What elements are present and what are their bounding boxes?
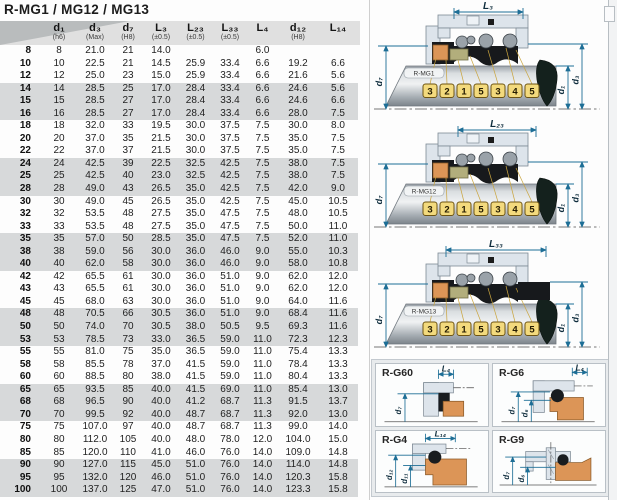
table-cell: 46.0 xyxy=(213,246,247,259)
dim-label-d7: d₇ xyxy=(394,407,403,415)
card-label: R-G60 xyxy=(382,367,413,379)
table-cell xyxy=(178,45,213,58)
part-number-tags: 3215345 xyxy=(423,322,539,336)
table-cell: 5.6 xyxy=(318,83,358,96)
page-edge xyxy=(608,0,617,500)
table-cell: 48 xyxy=(112,221,144,234)
table-cell: 39 xyxy=(112,158,144,171)
table-cell: 53.5 xyxy=(78,221,112,234)
table-row: 585885.57837.041.559.011.078.413.3 xyxy=(0,359,358,372)
table-row: 606088.58038.041.559.011.080.413.3 xyxy=(0,371,358,384)
table-cell: 51.0 xyxy=(178,459,213,472)
table-cell: 90 xyxy=(112,396,144,409)
diagram-r-mg13: R-MG13 3215345 L₃₃ d₇ d₁ d₃ xyxy=(370,238,617,358)
table-cell: 91.5 xyxy=(278,396,318,409)
table-cell: 14.0 xyxy=(318,421,358,434)
table-cell: 105 xyxy=(112,434,144,447)
table-cell: 92 xyxy=(112,409,144,422)
table-cell: 7.5 xyxy=(247,196,278,209)
table-cell: 33 xyxy=(112,120,144,133)
table-row: 707099.59240.048.768.711.392.013.0 xyxy=(0,409,358,422)
table-cell: 20 xyxy=(0,133,40,146)
table-cell: 112.0 xyxy=(78,434,112,447)
table-cell: 8.0 xyxy=(318,120,358,133)
table-cell: 18 xyxy=(40,120,78,133)
table-cell: 7.5 xyxy=(247,133,278,146)
table-cell: 93.5 xyxy=(78,384,112,397)
table-cell: 47.5 xyxy=(213,233,247,246)
part-number-text: 1 xyxy=(461,325,467,336)
table-cell: 49.0 xyxy=(78,183,112,196)
table-cell: 27 xyxy=(112,108,144,121)
card-label: R-G4 xyxy=(382,434,407,446)
table-cell: 81.0 xyxy=(78,346,112,359)
col-header-d1: d₁(h6) xyxy=(40,21,78,45)
table-cell: 80 xyxy=(40,434,78,447)
table-cell: 46.0 xyxy=(178,447,213,460)
table-cell: 40.0 xyxy=(144,421,178,434)
table-cell: 37.0 xyxy=(78,145,112,158)
table-row: 303049.04526.535.042.57.545.010.5 xyxy=(0,196,358,209)
table-cell: 32.5 xyxy=(178,170,213,183)
part-number-text: 5 xyxy=(478,205,484,216)
table-cell: 13.0 xyxy=(318,384,358,397)
table-cell: 12 xyxy=(40,70,78,83)
table-cell: 30.0 xyxy=(144,258,178,271)
table-cell: 78.5 xyxy=(78,334,112,347)
table-cell: 35 xyxy=(40,233,78,246)
table-cell: 62.0 xyxy=(278,283,318,296)
table-cell: 15 xyxy=(40,95,78,108)
table-cell: 7.5 xyxy=(318,158,358,171)
page-title: R-MG1 / MG12 / MG13 xyxy=(4,2,149,17)
table-cell: 42.5 xyxy=(213,158,247,171)
dim-label-d3: d₃ xyxy=(571,193,581,202)
table-cell: 28 xyxy=(40,183,78,196)
table-cell: 85.5 xyxy=(78,359,112,372)
table-cell: 97 xyxy=(112,421,144,434)
table-cell: 95 xyxy=(40,472,78,485)
table-cell: 65 xyxy=(0,384,40,397)
dim-label-d7: d₇ xyxy=(374,195,384,204)
diagram-r-mg1: R-MG1 3215345 L₃ d₇ d₁ d₃ xyxy=(370,0,617,120)
table-cell: 14.0 xyxy=(247,459,278,472)
table-cell: 38 xyxy=(40,246,78,259)
table-cell: 17.0 xyxy=(144,95,178,108)
table-cell: 32 xyxy=(0,208,40,221)
table-cell: 37.5 xyxy=(213,133,247,146)
table-cell: 43 xyxy=(40,283,78,296)
table-cell: 40 xyxy=(112,170,144,183)
table-cell: 9.5 xyxy=(247,321,278,334)
table-cell: 69.3 xyxy=(278,321,318,334)
table-cell: 10.8 xyxy=(318,258,358,271)
table-cell: 24.6 xyxy=(278,83,318,96)
table-cell: 14.0 xyxy=(144,45,178,58)
table-cell: 30.5 xyxy=(144,321,178,334)
table-cell: 68.7 xyxy=(213,409,247,422)
seat-variants-panel: L₄ d₇ R-G60 xyxy=(371,359,610,497)
table-cell: 46.0 xyxy=(144,472,178,485)
table-cell: 41.5 xyxy=(178,371,213,384)
card-r-g4: L₁₄ d₁₂ d₁₁ R-G4 xyxy=(375,430,489,494)
table-cell: 80 xyxy=(112,371,144,384)
table-cell: 32 xyxy=(40,208,78,221)
table-cell: 25.0 xyxy=(78,70,112,83)
table-cell: 123.3 xyxy=(278,484,318,497)
table-cell: 35 xyxy=(112,133,144,146)
table-row: 555581.07535.036.559.011.075.413.3 xyxy=(0,346,358,359)
col-header-d12: d₁₂(H8) xyxy=(278,21,318,45)
table-cell: 11.6 xyxy=(318,321,358,334)
table-cell: 63 xyxy=(112,296,144,309)
table-row: 282849.04326.535.042.57.542.09.0 xyxy=(0,183,358,196)
table-row: 9595132.012046.051.076.014.0120.315.8 xyxy=(0,472,358,485)
table-cell: 85 xyxy=(0,447,40,460)
table-cell: 75.4 xyxy=(278,346,318,359)
spec-table-wrap: d₁(h6) d₃(Max) d₇(H8) L₃(±0.5) L₂₃(±0.5)… xyxy=(0,21,360,497)
table-cell: 50.5 xyxy=(213,321,247,334)
table-cell: 25.9 xyxy=(178,70,213,83)
table-cell: 21.5 xyxy=(144,133,178,146)
table-cell: 10.5 xyxy=(318,208,358,221)
table-cell: 137.0 xyxy=(78,484,112,497)
diagram-r-mg12: R-MG12 3215345 L₂₃ d₇ d₁ d₃ xyxy=(370,118,617,238)
table-cell: 60 xyxy=(0,371,40,384)
table-row: 222237.03721.530.037.57.535.07.5 xyxy=(0,145,358,158)
table-cell: 27.5 xyxy=(144,208,178,221)
part-number-text: 1 xyxy=(461,87,467,98)
table-cell: 70.5 xyxy=(78,308,112,321)
spec-table-body: 8821.02114.06.0101022.52114.525.933.46.6… xyxy=(0,45,358,497)
dim-label-d6: d₆ xyxy=(517,474,526,482)
table-cell: 41.0 xyxy=(144,447,178,460)
table-cell: 24 xyxy=(40,158,78,171)
table-cell: 58.0 xyxy=(278,258,318,271)
table-cell: 51.0 xyxy=(213,283,247,296)
part-number-text: 5 xyxy=(529,325,535,336)
part-number-text: 3 xyxy=(427,325,432,336)
table-cell: 36.0 xyxy=(178,246,213,259)
table-cell: 33.4 xyxy=(213,83,247,96)
diagram-label: R-MG1 xyxy=(414,71,435,78)
table-cell: 65.5 xyxy=(78,283,112,296)
table-cell: 70 xyxy=(0,409,40,422)
part-number-text: 2 xyxy=(444,325,449,336)
table-cell: 53 xyxy=(0,334,40,347)
table-cell: 68.7 xyxy=(213,421,247,434)
table-cell: 30.0 xyxy=(144,271,178,284)
table-cell: 9.0 xyxy=(247,258,278,271)
table-row: 100100137.012547.051.076.014.0123.315.8 xyxy=(0,484,358,497)
table-cell: 14 xyxy=(0,83,40,96)
table-cell: 6.6 xyxy=(247,83,278,96)
table-cell: 30.0 xyxy=(278,120,318,133)
table-cell: 40.0 xyxy=(144,409,178,422)
table-cell: 96.5 xyxy=(78,396,112,409)
table-cell: 17.0 xyxy=(144,108,178,121)
table-cell: 115 xyxy=(112,459,144,472)
table-cell: 27 xyxy=(112,95,144,108)
table-cell: 12.0 xyxy=(318,271,358,284)
table-cell: 50 xyxy=(40,321,78,334)
dim-label-L23: L₂₃ xyxy=(490,119,504,130)
table-row: 8585120.011041.046.076.014.0109.014.8 xyxy=(0,447,358,460)
card-r-g9: d₇ d₆ R-G9 xyxy=(492,430,606,494)
table-cell: 45.0 xyxy=(144,459,178,472)
table-cell: 68 xyxy=(0,396,40,409)
table-row: 252542.54023.032.542.57.538.07.5 xyxy=(0,170,358,183)
table-cell: 42 xyxy=(0,271,40,284)
table-cell: 9.0 xyxy=(318,183,358,196)
table-cell: 13.3 xyxy=(318,359,358,372)
table-cell: 11.3 xyxy=(247,421,278,434)
table-cell: 7.5 xyxy=(318,170,358,183)
dim-label-L33: L₃₃ xyxy=(489,239,503,250)
table-cell: 59.0 xyxy=(213,359,247,372)
table-cell: 22 xyxy=(40,145,78,158)
table-cell: 30 xyxy=(40,196,78,209)
table-cell: 50 xyxy=(0,321,40,334)
table-cell: 61 xyxy=(112,283,144,296)
table-row: 353557.05028.535.047.57.552.011.0 xyxy=(0,233,358,246)
table-row: 383859.05630.036.046.09.055.010.3 xyxy=(0,246,358,259)
table-cell: 6.6 xyxy=(247,70,278,83)
table-cell: 21 xyxy=(112,58,144,71)
dim-label-d1: d₁ xyxy=(556,324,566,333)
table-cell: 22.5 xyxy=(144,158,178,171)
table-cell: 120 xyxy=(112,472,144,485)
table-cell: 70 xyxy=(40,409,78,422)
table-cell: 36.0 xyxy=(178,283,213,296)
table-cell: 45 xyxy=(40,296,78,309)
table-cell: 52.0 xyxy=(278,233,318,246)
table-cell: 100 xyxy=(40,484,78,497)
table-cell: 38.0 xyxy=(178,321,213,334)
table-cell: 47.0 xyxy=(144,484,178,497)
table-cell: 45 xyxy=(0,296,40,309)
table-row: 7575107.09740.048.768.711.399.014.0 xyxy=(0,421,358,434)
table-cell: 20 xyxy=(40,133,78,146)
table-cell: 23 xyxy=(112,70,144,83)
table-cell: 51.0 xyxy=(178,472,213,485)
table-row: 8080112.010540.048.078.012.0104.015.0 xyxy=(0,434,358,447)
card-r-g6: L₄ d₇ d₆ R-G6 xyxy=(492,363,606,427)
part-number-text: 2 xyxy=(444,87,449,98)
table-cell: 11.0 xyxy=(318,221,358,234)
table-cell: 60 xyxy=(40,371,78,384)
dim-label-d7: d₇ xyxy=(374,77,384,86)
table-cell: 32.0 xyxy=(78,120,112,133)
table-cell: 13.0 xyxy=(318,409,358,422)
table-cell: 11.0 xyxy=(247,371,278,384)
table-cell: 56 xyxy=(112,246,144,259)
table-cell: 35.0 xyxy=(178,221,213,234)
dim-label-d3: d₃ xyxy=(571,75,581,84)
table-cell: 14.8 xyxy=(318,447,358,460)
table-cell: 9.0 xyxy=(247,271,278,284)
table-cell: 68 xyxy=(40,396,78,409)
table-cell: 75 xyxy=(40,421,78,434)
table-row: 686896.59040.041.268.711.391.513.7 xyxy=(0,396,358,409)
table-cell: 33.4 xyxy=(213,70,247,83)
part-number-text: 3 xyxy=(427,205,432,216)
table-cell: 30.0 xyxy=(178,120,213,133)
table-cell: 58 xyxy=(0,359,40,372)
table-cell: 35.0 xyxy=(278,145,318,158)
table-row: 151528.52717.028.433.46.624.66.6 xyxy=(0,95,358,108)
table-cell: 7.5 xyxy=(247,208,278,221)
table-cell: 10.3 xyxy=(318,246,358,259)
table-header-row: d₁(h6) d₃(Max) d₇(H8) L₃(±0.5) L₂₃(±0.5)… xyxy=(0,21,358,45)
dim-label-d11: d₁₁ xyxy=(400,473,409,484)
table-row: 242442.53922.532.542.57.538.07.5 xyxy=(0,158,358,171)
table-cell: 7.5 xyxy=(247,170,278,183)
table-cell: 35.0 xyxy=(278,133,318,146)
dim-label-L4: L₄ xyxy=(442,364,450,373)
col-header-L14: L₁₄ xyxy=(318,21,358,45)
table-cell: 28.5 xyxy=(144,233,178,246)
table-cell: 19.5 xyxy=(144,120,178,133)
table-cell: 18 xyxy=(0,120,40,133)
table-cell: 64.0 xyxy=(278,296,318,309)
table-cell: 69.0 xyxy=(213,384,247,397)
table-cell: 76.0 xyxy=(213,472,247,485)
table-cell: 76.0 xyxy=(213,484,247,497)
part-number-text: 5 xyxy=(529,87,535,98)
table-cell: 47.5 xyxy=(213,221,247,234)
table-cell: 125 xyxy=(112,484,144,497)
table-cell: 22 xyxy=(0,145,40,158)
table-cell: 110 xyxy=(112,447,144,460)
table-cell: 37.5 xyxy=(213,145,247,158)
table-cell: 80.4 xyxy=(278,371,318,384)
table-cell: 50.0 xyxy=(278,221,318,234)
diagram-label: R-MG13 xyxy=(412,309,437,316)
table-cell: 11.3 xyxy=(247,396,278,409)
table-cell: 15.0 xyxy=(144,70,178,83)
table-cell: 28.5 xyxy=(78,95,112,108)
card-r-g60: L₄ d₇ R-G60 xyxy=(375,363,489,427)
table-cell: 68.4 xyxy=(278,308,318,321)
table-cell: 80 xyxy=(0,434,40,447)
table-cell: 40 xyxy=(40,258,78,271)
table-cell: 33.0 xyxy=(144,334,178,347)
table-cell: 51.0 xyxy=(213,308,247,321)
card-label: R-G6 xyxy=(499,367,524,379)
table-cell: 55.0 xyxy=(278,246,318,259)
table-cell: 78.0 xyxy=(213,434,247,447)
table-cell: 42.5 xyxy=(78,158,112,171)
table-cell: 35.0 xyxy=(178,233,213,246)
table-cell: 15.8 xyxy=(318,472,358,485)
table-row: 8821.02114.06.0 xyxy=(0,45,358,58)
table-cell: 28.5 xyxy=(78,83,112,96)
col-header-d7: d₇(H8) xyxy=(112,21,144,45)
part-number-text: 5 xyxy=(529,205,535,216)
table-cell: 48.7 xyxy=(178,409,213,422)
table-cell: 25 xyxy=(0,170,40,183)
table-row: 9090127.011545.051.076.014.0114.014.8 xyxy=(0,459,358,472)
table-cell: 21.6 xyxy=(278,70,318,83)
table-cell: 75 xyxy=(112,346,144,359)
table-cell: 36.0 xyxy=(178,271,213,284)
table-cell: 40.0 xyxy=(144,396,178,409)
table-cell: 27.5 xyxy=(144,221,178,234)
table-cell: 24 xyxy=(0,158,40,171)
table-cell: 30 xyxy=(0,196,40,209)
dim-label-d12: d₁₂ xyxy=(385,469,394,480)
table-cell: 10 xyxy=(0,58,40,71)
table-cell: 51.0 xyxy=(213,296,247,309)
table-row: 202037.03521.530.037.57.535.07.5 xyxy=(0,133,358,146)
table-cell: 38.0 xyxy=(144,371,178,384)
table-cell: 41.2 xyxy=(178,396,213,409)
table-section: R-MG1 / MG12 / MG13 d₁(h6) d₃(Max) d₇(H8… xyxy=(0,0,370,500)
table-cell: 45 xyxy=(112,196,144,209)
table-cell: 37.0 xyxy=(78,133,112,146)
col-header-L33: L₃₃(±0.5) xyxy=(213,21,247,45)
part-number-text: 4 xyxy=(512,325,518,336)
table-cell: 16 xyxy=(40,108,78,121)
table-cell: 11.6 xyxy=(318,308,358,321)
table-cell: 41.5 xyxy=(178,384,213,397)
table-cell: 73 xyxy=(112,334,144,347)
table-row: 424265.56130.036.051.09.062.012.0 xyxy=(0,271,358,284)
part-number-text: 4 xyxy=(512,87,518,98)
table-cell: 7.5 xyxy=(247,158,278,171)
table-cell: 41.5 xyxy=(178,359,213,372)
table-cell: 37.0 xyxy=(144,359,178,372)
table-cell: 37 xyxy=(112,145,144,158)
table-cell: 8 xyxy=(0,45,40,58)
table-cell: 7.5 xyxy=(247,120,278,133)
table-cell: 68.7 xyxy=(213,396,247,409)
table-cell: 11.0 xyxy=(318,233,358,246)
table-row: 141428.52517.028.433.46.624.65.6 xyxy=(0,83,358,96)
part-number-text: 2 xyxy=(444,205,449,216)
table-cell: 16 xyxy=(0,108,40,121)
dim-label-L3: L₃ xyxy=(483,1,493,12)
table-cell: 6.6 xyxy=(318,95,358,108)
table-cell: 42 xyxy=(40,271,78,284)
table-cell: 7.5 xyxy=(318,133,358,146)
table-cell: 48.7 xyxy=(178,421,213,434)
table-cell: 132.0 xyxy=(78,472,112,485)
table-cell: 6.0 xyxy=(247,45,278,58)
table-cell: 36.5 xyxy=(178,334,213,347)
table-cell: 7.5 xyxy=(247,183,278,196)
table-cell: 40.0 xyxy=(144,434,178,447)
table-cell: 61 xyxy=(112,271,144,284)
table-cell: 43 xyxy=(112,183,144,196)
table-cell: 9.0 xyxy=(247,283,278,296)
table-cell: 14.8 xyxy=(318,459,358,472)
table-cell: 120.0 xyxy=(78,447,112,460)
table-cell: 7.5 xyxy=(247,145,278,158)
table-cell: 53 xyxy=(40,334,78,347)
table-row: 434365.56130.036.051.09.062.012.0 xyxy=(0,283,358,296)
table-row: 161628.52717.028.433.46.628.07.5 xyxy=(0,108,358,121)
table-cell: 65 xyxy=(40,384,78,397)
table-cell: 33 xyxy=(40,221,78,234)
table-cell: 70 xyxy=(112,321,144,334)
table-cell: 53.5 xyxy=(78,208,112,221)
table-cell: 28.0 xyxy=(278,108,318,121)
table-cell: 35.0 xyxy=(178,196,213,209)
dim-label-d7: d₇ xyxy=(374,315,384,324)
table-cell: 30.0 xyxy=(178,145,213,158)
